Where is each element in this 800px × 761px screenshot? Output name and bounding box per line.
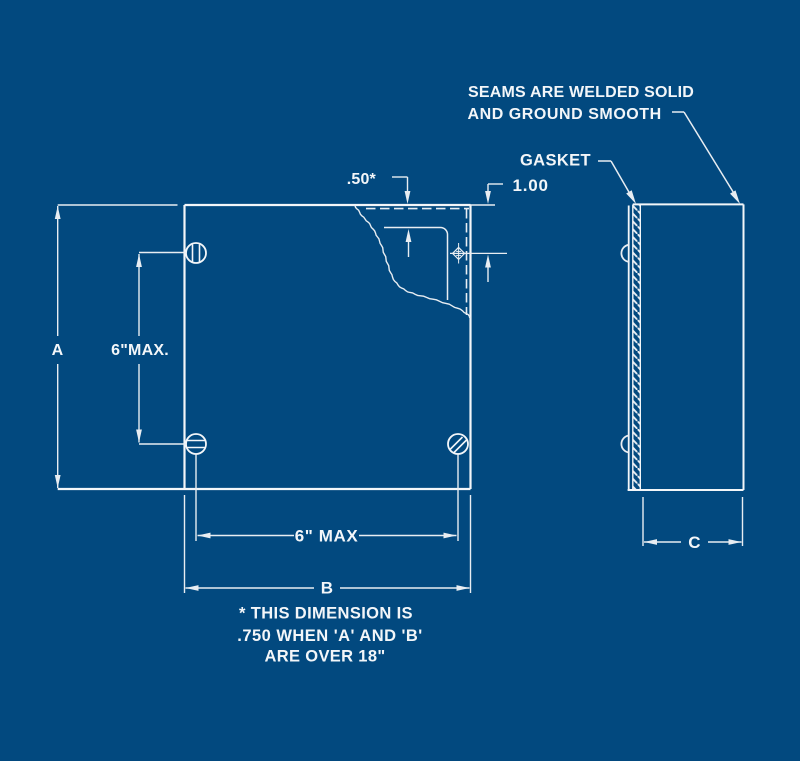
svg-text:6"MAX.: 6"MAX. bbox=[111, 342, 169, 359]
svg-text:6" MAX: 6" MAX bbox=[295, 527, 359, 546]
svg-text:1.00: 1.00 bbox=[513, 176, 549, 195]
svg-text:GASKET: GASKET bbox=[520, 152, 591, 170]
svg-text:AND GROUND SMOOTH: AND GROUND SMOOTH bbox=[468, 106, 662, 123]
svg-text:ARE OVER 18": ARE OVER 18" bbox=[264, 648, 385, 666]
svg-text:A: A bbox=[52, 342, 64, 359]
svg-text:SEAMS ARE WELDED SOLID: SEAMS ARE WELDED SOLID bbox=[468, 84, 694, 101]
svg-text:* THIS DIMENSION IS: * THIS DIMENSION IS bbox=[239, 605, 413, 623]
svg-text:B: B bbox=[321, 579, 333, 598]
svg-text:.50*: .50* bbox=[347, 171, 377, 188]
svg-text:C: C bbox=[688, 533, 700, 552]
svg-text:.750 WHEN 'A' AND 'B': .750 WHEN 'A' AND 'B' bbox=[237, 627, 422, 645]
